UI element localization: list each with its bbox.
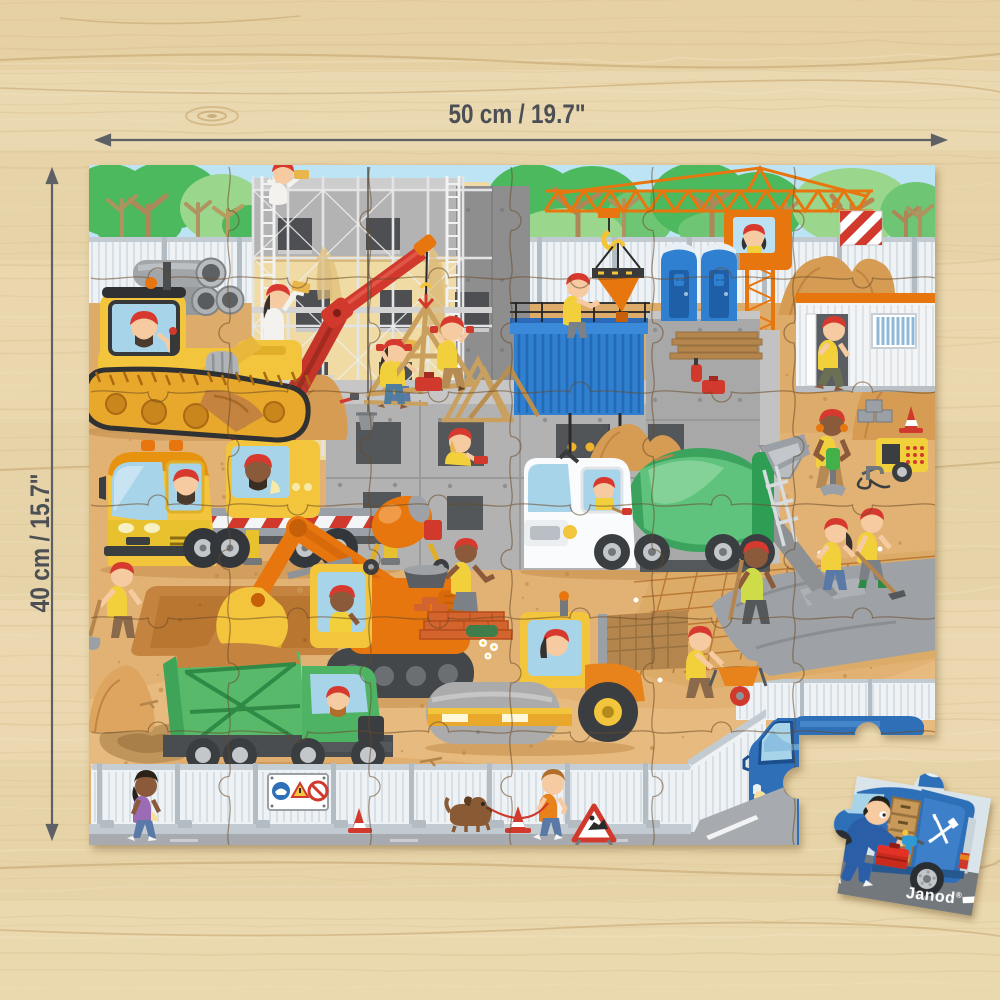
svg-text:50 cm / 19.7": 50 cm / 19.7" [449,99,586,129]
svg-text:40 cm / 15.7": 40 cm / 15.7" [25,474,55,613]
